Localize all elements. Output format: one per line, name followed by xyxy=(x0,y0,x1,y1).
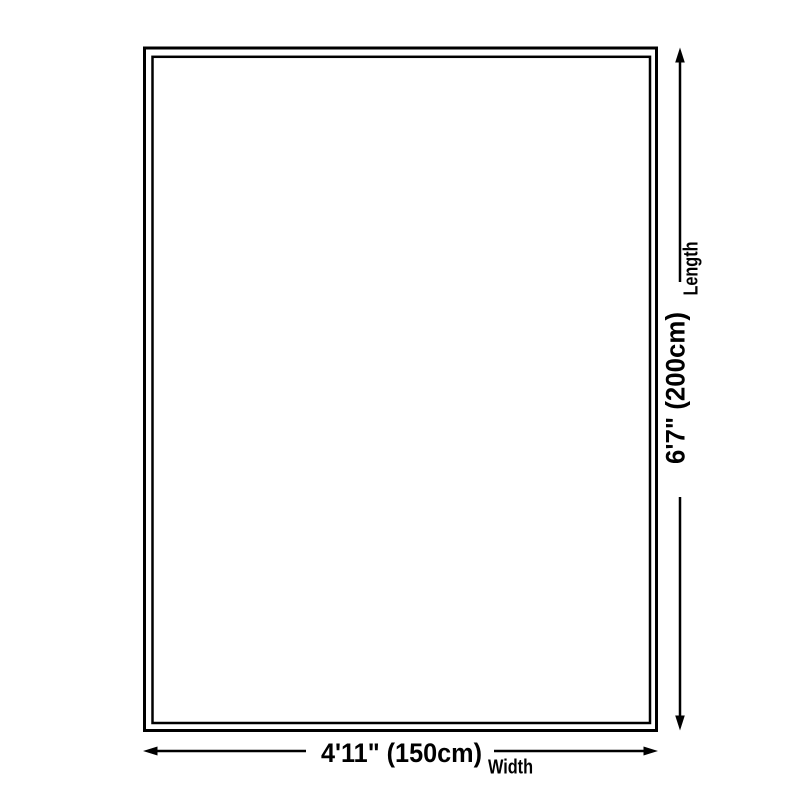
svg-text:Width: Width xyxy=(488,757,533,779)
svg-text:Length: Length xyxy=(681,242,703,296)
svg-text:6'7" (200cm): 6'7" (200cm) xyxy=(661,312,691,464)
svg-text:4'11" (150cm): 4'11" (150cm) xyxy=(321,738,482,768)
